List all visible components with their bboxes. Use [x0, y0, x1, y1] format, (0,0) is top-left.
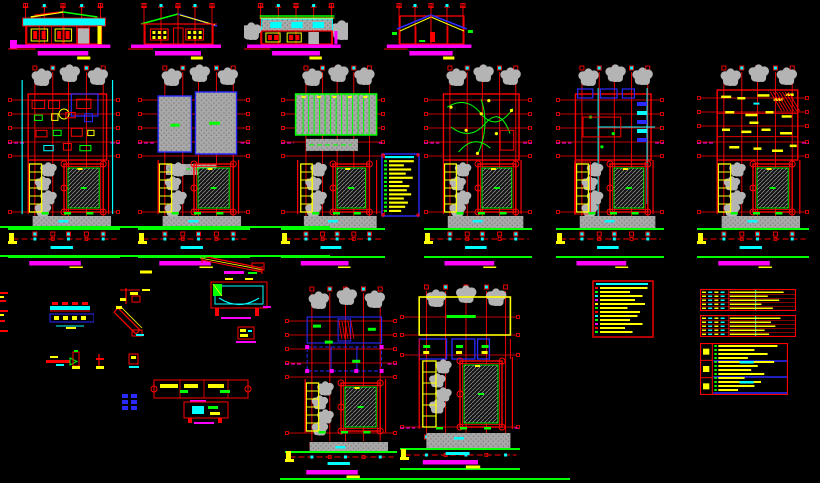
dimension-plan-svg	[697, 62, 809, 268]
margin-tick-marks	[0, 290, 12, 336]
wall-niche-detail-svg	[236, 325, 258, 345]
framing-plan-svg	[281, 62, 385, 268]
basin-fixture-detail-svg	[178, 400, 234, 424]
rebar-schedule-block-svg	[120, 392, 140, 412]
post-base-detail-1-svg	[70, 350, 82, 372]
post-base-detail-1	[70, 350, 82, 372]
rebar-schedule-block	[120, 392, 140, 412]
electrical-plan-svg	[424, 62, 532, 268]
gutter-detail	[118, 286, 144, 306]
electrical-plan	[424, 62, 532, 268]
schedule-table-1-svg	[700, 289, 796, 311]
materials-table	[700, 343, 788, 395]
plumbing-plan-svg	[556, 62, 664, 268]
schedule-table-2	[700, 315, 796, 337]
cad-sheet	[0, 0, 820, 483]
clamp-detail	[127, 352, 141, 370]
stair-stringer-detail	[114, 304, 146, 338]
interior-layout-plan	[285, 285, 397, 483]
dimension-plan	[697, 62, 809, 268]
front-elevation-svg	[8, 2, 118, 60]
fountain-basin-section	[205, 276, 273, 320]
interior-layout-plan-svg	[285, 285, 397, 483]
framing-plan	[281, 62, 385, 268]
ridge-flashing-detail-svg	[200, 254, 268, 276]
beam-section-detail-svg	[48, 300, 94, 330]
building-section	[384, 2, 478, 60]
ridge-flashing-detail	[200, 254, 268, 276]
post-base-detail-2	[94, 352, 106, 370]
side-elevation-svg	[244, 2, 348, 60]
front-elevation	[8, 2, 118, 60]
roof-plan	[138, 62, 250, 268]
clamp-detail-svg	[127, 352, 141, 370]
keynote-legend-blue	[381, 153, 420, 217]
schedule-table-2-svg	[700, 315, 796, 337]
plumbing-plan	[556, 62, 664, 268]
gutter-detail-svg	[118, 286, 144, 306]
margin-tick-marks-svg	[0, 290, 12, 336]
ground-floor-plan-svg	[8, 62, 120, 268]
keynote-legend-blue-svg	[381, 153, 420, 217]
building-section-svg	[384, 2, 478, 60]
rear-elevation-svg	[128, 2, 228, 60]
fountain-basin-section-svg	[205, 276, 273, 320]
canopy-roof-plan	[400, 283, 520, 483]
canopy-roof-plan-svg	[400, 283, 520, 483]
schedule-table-1	[700, 289, 796, 311]
keynote-legend-red	[592, 280, 654, 338]
wall-niche-detail	[236, 325, 258, 345]
post-base-detail-2-svg	[94, 352, 106, 370]
stair-stringer-detail-svg	[114, 304, 146, 338]
materials-table-svg	[700, 343, 788, 395]
rear-elevation	[128, 2, 228, 60]
side-elevation	[244, 2, 348, 60]
roof-plan-svg	[138, 62, 250, 268]
keynote-legend-red-svg	[592, 280, 654, 338]
beam-section-detail	[48, 300, 94, 330]
ground-floor-plan	[8, 62, 120, 268]
basin-fixture-detail	[178, 400, 234, 424]
